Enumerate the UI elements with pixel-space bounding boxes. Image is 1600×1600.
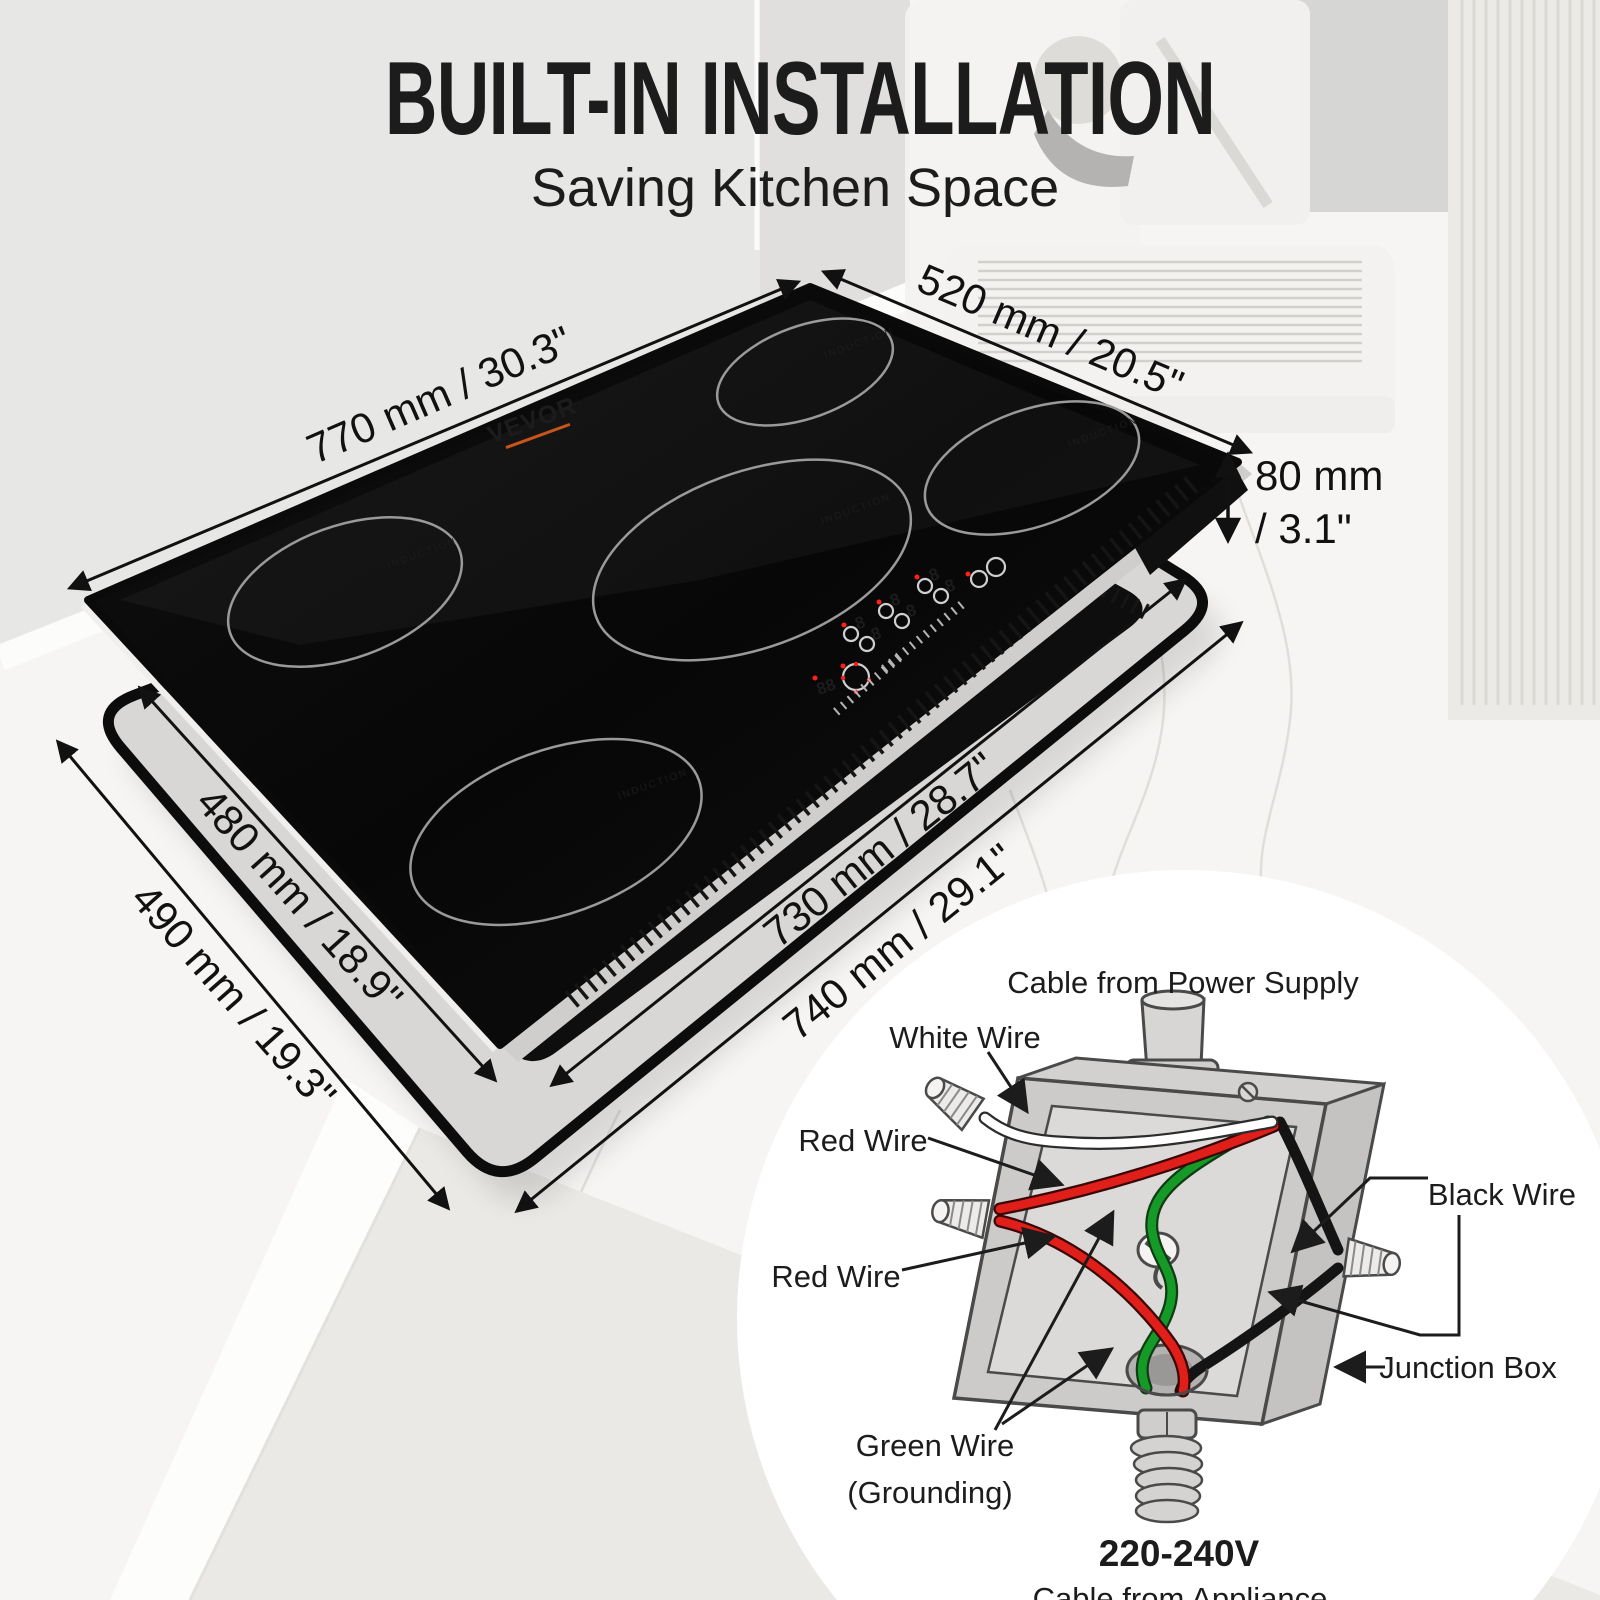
- scene: BUILT-IN INSTALLATION Saving Kitchen Spa…: [0, 0, 1600, 1600]
- label-white-wire: White Wire: [889, 1020, 1041, 1055]
- box-screw-icon: [1239, 1083, 1257, 1101]
- junction-box: [954, 1058, 1384, 1424]
- label-red-wire-bottom: Red Wire: [771, 1259, 900, 1294]
- slat-panel: [1448, 0, 1600, 720]
- label-green-wire-1: Green Wire: [856, 1428, 1014, 1463]
- page-title: BUILT-IN INSTALLATION: [385, 41, 1215, 157]
- page: BUILT-IN INSTALLATION Saving Kitchen Spa…: [0, 0, 1600, 1600]
- dim-label-80-in: / 3.1": [1255, 505, 1352, 552]
- label-cable-power-supply: Cable from Power Supply: [1007, 965, 1359, 1000]
- label-cable-appliance: Cable from Appliance: [1033, 1581, 1328, 1600]
- page-subtitle: Saving Kitchen Space: [531, 158, 1059, 218]
- dim-label-80-mm: 80 mm: [1255, 452, 1383, 499]
- label-black-wire: Black Wire: [1428, 1177, 1576, 1212]
- label-junction-box: Junction Box: [1379, 1350, 1557, 1385]
- label-voltage: 220-240V: [1099, 1533, 1260, 1574]
- label-red-wire-top: Red Wire: [798, 1123, 927, 1158]
- label-green-wire-2: (Grounding): [847, 1475, 1012, 1510]
- appliance-cable-hose: [1131, 1410, 1202, 1522]
